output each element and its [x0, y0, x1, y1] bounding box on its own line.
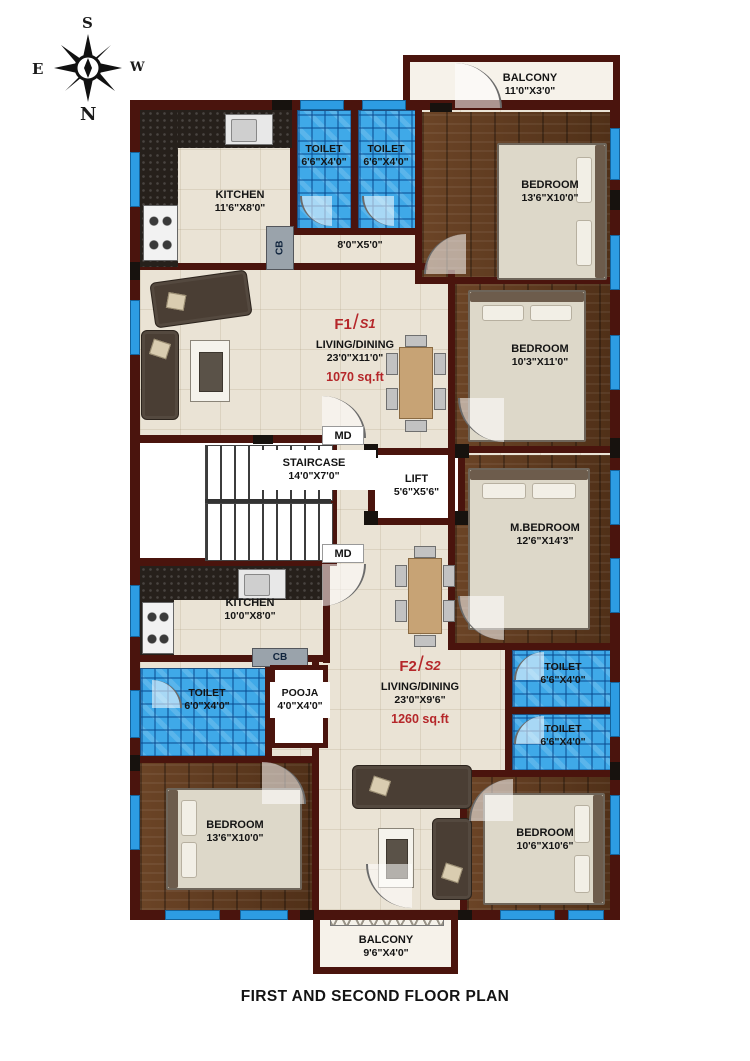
wall-accent	[458, 910, 472, 920]
compass-top-label: S	[82, 14, 93, 32]
label-toilet-r1: TOILET6'6"X4'0"	[523, 656, 603, 692]
window	[165, 910, 220, 920]
sofa-f2-top	[352, 765, 472, 809]
window	[130, 690, 140, 738]
window	[130, 152, 140, 207]
dining-table-f2	[408, 558, 442, 634]
main-door-chip-f2: MD	[322, 544, 364, 563]
compass-left-label: E	[32, 60, 43, 78]
dining-chair	[434, 388, 446, 410]
wall-accent	[300, 910, 314, 920]
window	[610, 470, 620, 525]
kitchen1-stove	[143, 205, 178, 261]
window	[610, 235, 620, 290]
dining-chair	[395, 565, 407, 587]
label-living-f1: F1/S1 LIVING/DINING 23'0"X11'0" 1070 sq.…	[255, 308, 455, 388]
staircase-lower-flight	[205, 503, 333, 561]
main-door-chip-f1: MD	[322, 426, 364, 445]
label-bedroom-2: BEDROOM10'3"X11'0"	[485, 336, 595, 376]
dining-chair	[443, 600, 455, 622]
label-bedroom-1: BEDROOM13'6"X10'0"	[495, 172, 605, 212]
wall-toilets-bottom	[290, 228, 422, 235]
lift-corner-block	[455, 511, 469, 525]
wall-toiletf2-bottom	[138, 756, 312, 763]
label-toilet-r2: TOILET6'6"X4'0"	[523, 718, 603, 754]
window	[240, 910, 288, 920]
label-passage-f1: 8'0"X5'0"	[310, 236, 410, 256]
label-bedroom-4: BEDROOM10'6"X10'6"	[490, 820, 600, 860]
label-bedroom-3: BEDROOM13'6"X10'0"	[180, 812, 290, 852]
wall-accent	[430, 103, 452, 112]
wall-bedroom2-bottom	[455, 446, 612, 453]
label-toilet-top-1: TOILET6'6"X4'0"	[290, 138, 358, 174]
window	[300, 100, 344, 110]
dining-chair	[395, 600, 407, 622]
wall-accent	[610, 190, 620, 210]
dining-chair	[386, 388, 398, 410]
wall-accent	[610, 762, 620, 780]
dining-chair	[414, 546, 436, 558]
label-toilet-top-2: TOILET6'6"X4'0"	[352, 138, 420, 174]
window	[610, 128, 620, 180]
dining-chair	[414, 635, 436, 647]
label-living-f2: F2/S2 LIVING/DINING 23'0"X9'6" 1260 sq.f…	[335, 648, 505, 732]
label-lift: LIFT5'6"X5'6"	[375, 466, 458, 506]
page-title: FIRST AND SECOND FLOOR PLAN	[0, 988, 750, 1006]
floor-plan-page: S N E W	[0, 0, 750, 1061]
dining-chair	[443, 565, 455, 587]
sofa-f1-left	[141, 330, 179, 420]
dining-chair	[405, 420, 427, 432]
wall-toiletR2-bedroom4	[455, 770, 612, 777]
kitchen1-sink	[225, 114, 273, 145]
window	[362, 100, 406, 110]
wall-living1-staircase	[138, 435, 338, 443]
label-balcony-top: BALCONY11'0"X3'0"	[460, 66, 600, 104]
label-staircase: STAIRCASE14'0"X7'0"	[252, 450, 376, 490]
label-master-bedroom: M.BEDROOM12'6"X14'3"	[485, 515, 605, 555]
window	[568, 910, 604, 920]
compass-bottom-label: N	[80, 104, 96, 125]
kitchen2-stove	[142, 602, 174, 654]
label-kitchen-f2: KITCHEN10'0"X8'0"	[195, 590, 305, 630]
window	[610, 795, 620, 855]
wall-accent	[610, 438, 620, 458]
sofa-f2-right	[432, 818, 472, 900]
wall-living2-toiletsR	[505, 645, 512, 776]
window	[610, 682, 620, 737]
label-pooja: POOJA4'0"X4'0"	[270, 682, 330, 718]
tv-unit-f1	[190, 340, 230, 402]
window	[130, 300, 140, 355]
compass-star-icon	[38, 18, 138, 118]
wall-accent	[253, 435, 273, 444]
label-balcony-bottom: BALCONY9'6"X4'0"	[320, 928, 452, 966]
wall-toilet2-bedroom1	[415, 105, 422, 277]
cupboard-f1: CB	[266, 226, 294, 270]
lift-corner-block	[455, 444, 469, 458]
label-kitchen-f1: KITCHEN11'6"X8'0"	[185, 182, 295, 222]
window	[130, 795, 140, 850]
wall-accent	[130, 755, 140, 771]
compass-rose: S N E W	[38, 18, 138, 118]
wall-toiletR1-toiletR2	[512, 707, 612, 714]
staircase-divider	[205, 499, 331, 503]
compass-right-label: W	[130, 60, 145, 75]
window	[500, 910, 555, 920]
window	[610, 558, 620, 613]
window	[130, 585, 140, 637]
wall-accent	[272, 100, 292, 110]
lift-corner-block	[364, 511, 378, 525]
wall-accent	[130, 262, 140, 280]
label-toilet-f2: TOILET6'0"X4'0"	[162, 682, 252, 718]
window	[610, 335, 620, 390]
